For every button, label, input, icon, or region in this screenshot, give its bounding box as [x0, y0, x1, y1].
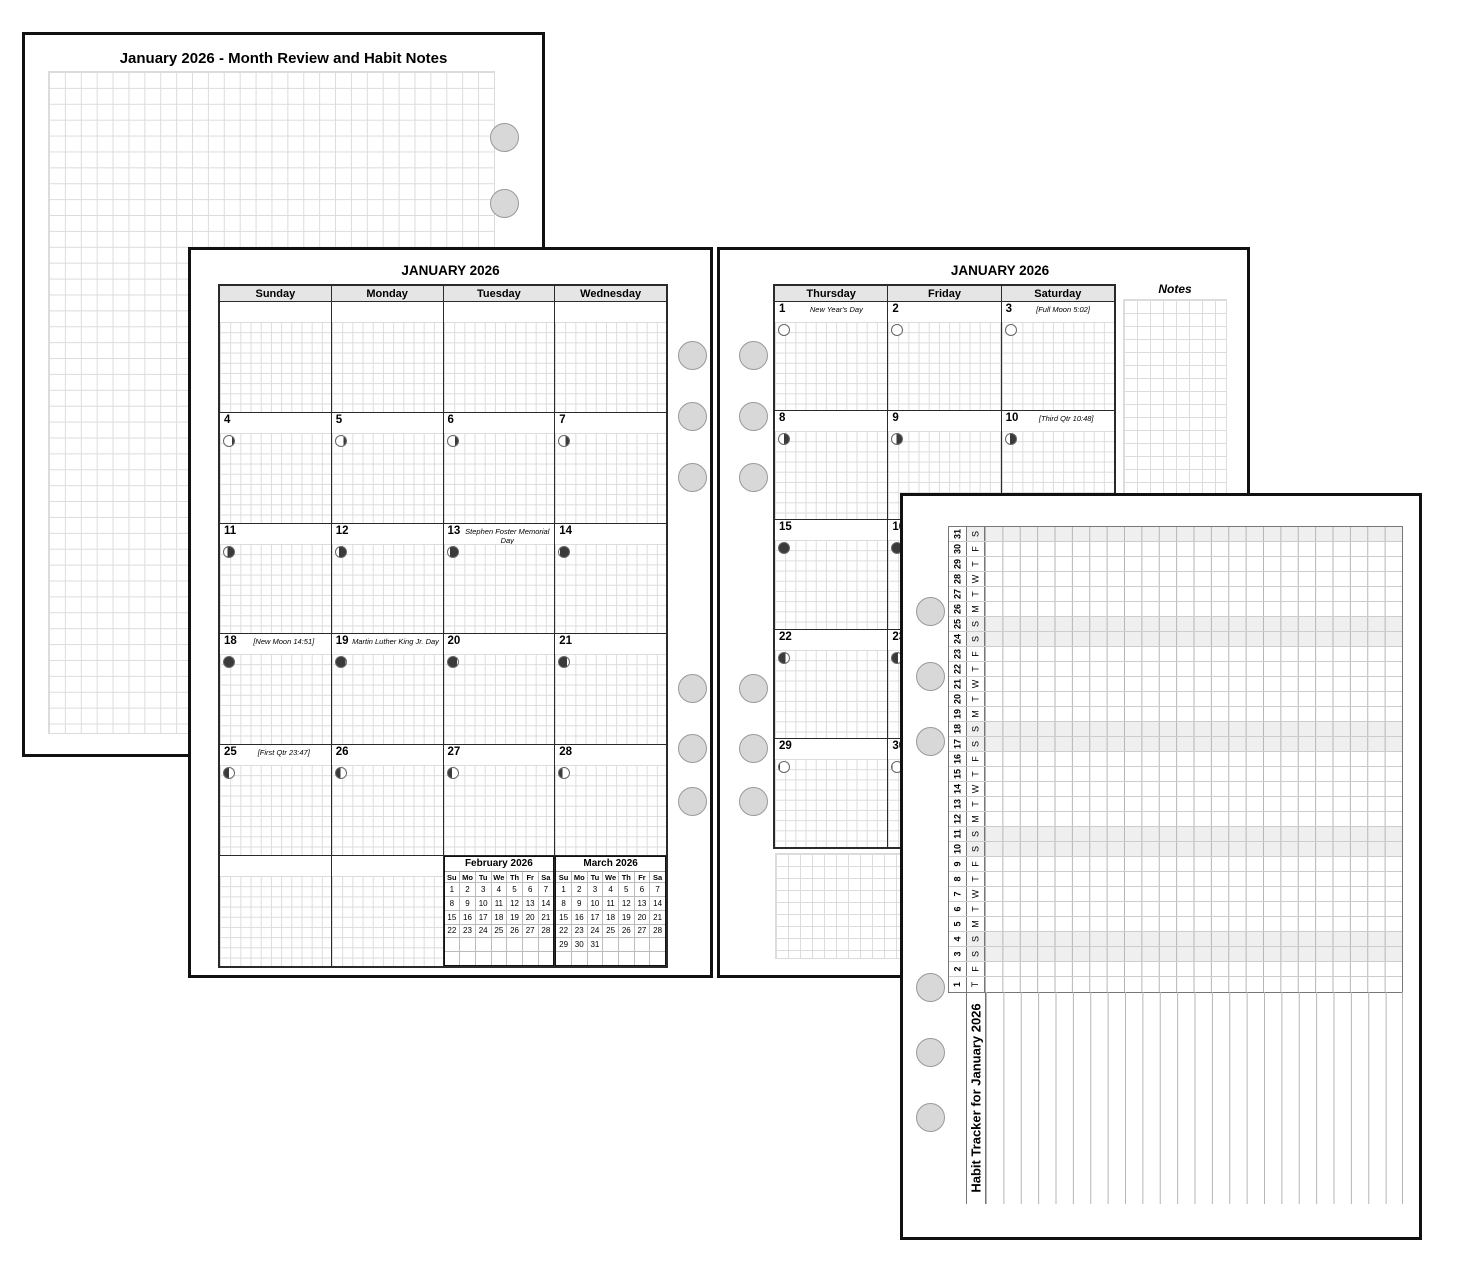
moon-phase-icon: [778, 542, 790, 554]
mini-date: 14: [539, 897, 554, 910]
punch-hole: [678, 463, 707, 492]
tracker-day-number: 19: [949, 707, 967, 721]
tracker-day-number: 26: [949, 602, 967, 616]
date-number: 27: [448, 747, 461, 759]
mini-date: 23: [572, 925, 588, 938]
date-number: 10: [1006, 413, 1019, 425]
day-header-wednesday: Wednesday: [555, 286, 666, 301]
tracker-habit-cells: [985, 962, 1402, 976]
mini-date: [635, 952, 651, 965]
date-number: 19: [336, 636, 349, 648]
date-number: 13: [448, 526, 461, 538]
tracker-day-number: 7: [949, 887, 967, 901]
day-header-thursday: Thursday: [775, 286, 888, 301]
mini-calendar-february-2026: February 2026SuMoTuWeThFrSa1234567891011…: [444, 856, 555, 966]
tracker-row-day-6: 6T: [949, 902, 1402, 917]
punch-hole: [916, 1038, 945, 1067]
tracker-weekday-letter: F: [967, 752, 985, 766]
tracker-habit-cells: [985, 542, 1402, 556]
tracker-weekday-letter: T: [967, 557, 985, 571]
mini-date: 16: [572, 911, 588, 924]
tracker-habit-cells: [985, 662, 1402, 676]
moon-phase-icon: [1005, 324, 1017, 336]
mini-date: 8: [556, 897, 572, 910]
tracker-habit-cells: [985, 527, 1402, 541]
tracker-day-number: 3: [949, 947, 967, 961]
tracker-day-number: 8: [949, 872, 967, 886]
mini-calendar-week-row: 1234567: [556, 882, 665, 896]
tracker-day-number: 6: [949, 902, 967, 916]
punch-hole: [916, 727, 945, 756]
day-header-monday: Monday: [332, 286, 444, 301]
date-cell-grid: [332, 544, 443, 634]
habit-name-columns: [986, 992, 1403, 1204]
moon-phase-icon: [335, 767, 347, 779]
holiday-label: Martin Luther King Jr. Day: [349, 637, 443, 646]
tracker-habit-cells: [985, 647, 1402, 661]
mini-date: 21: [650, 911, 665, 924]
tracker-row-day-27: 27T: [949, 587, 1402, 602]
mini-date: 25: [492, 925, 508, 938]
date-cell-14: 14: [555, 524, 666, 634]
mini-calendar-dow-row: SuMoTuWeThFrSa: [445, 871, 554, 882]
tracker-row-day-5: 5M: [949, 917, 1402, 932]
punch-hole: [739, 402, 768, 431]
punch-hole: [739, 463, 768, 492]
tracker-row-day-1: 1T: [949, 977, 1402, 992]
mini-date: [507, 938, 523, 951]
mini-date: 27: [523, 925, 539, 938]
tracker-day-number: 10: [949, 842, 967, 856]
date-cell-header: [555, 302, 666, 322]
mini-date: 18: [603, 911, 619, 924]
date-cell-header: 28: [555, 745, 666, 765]
holiday-label: Stephen Foster Memorial Day: [460, 527, 554, 545]
moon-phase-icon: [778, 433, 790, 445]
tracker-day-number: 4: [949, 932, 967, 946]
page-title: JANUARY 2026: [773, 263, 1227, 278]
date-cell-header: 22: [775, 630, 887, 650]
date-cell-1: 1New Year's Day: [775, 302, 888, 410]
mini-calendar-title: March 2026: [556, 857, 665, 871]
planner-pages-preview: January 2026 - Month Review and Habit No…: [0, 0, 1464, 1262]
mini-date: [539, 952, 554, 965]
date-number: 21: [559, 636, 572, 648]
date-cell-grid: [220, 544, 331, 634]
mini-date: 15: [556, 911, 572, 924]
calendar-bottom-row: February 2026SuMoTuWeThFrSa1234567891011…: [220, 856, 666, 966]
tracker-row-day-2: 2F: [949, 962, 1402, 977]
tracker-weekday-letter: S: [967, 932, 985, 946]
date-number: 6: [448, 415, 454, 427]
tracker-weekday-letter: M: [967, 602, 985, 616]
tracker-weekday-letter-text: F: [969, 961, 983, 978]
tracker-weekday-letter: T: [967, 662, 985, 676]
moon-phase-icon: [447, 435, 459, 447]
mini-date: 22: [556, 925, 572, 938]
date-cell-header: 1New Year's Day: [775, 302, 887, 322]
mini-date: 28: [539, 925, 554, 938]
mini-calendar-week-row: 22232425262728: [556, 924, 665, 938]
date-cell-27: 27: [444, 745, 556, 855]
mini-date: [445, 938, 461, 951]
mini-date: [572, 952, 588, 965]
tracker-weekday-letter: W: [967, 677, 985, 691]
punch-hole: [739, 674, 768, 703]
mini-date: 19: [507, 911, 523, 924]
date-cell-13: 13Stephen Foster Memorial Day: [444, 524, 556, 634]
mini-date: 30: [572, 938, 588, 951]
date-cell-empty: [220, 302, 332, 412]
tracker-day-number: 14: [949, 782, 967, 796]
moon-phase-icon: [335, 546, 347, 558]
mini-calendar-week-row: 22232425262728: [445, 924, 554, 938]
mini-date: 16: [460, 911, 476, 924]
tracker-weekday-letter: W: [967, 572, 985, 586]
date-cell-20: 20: [444, 634, 556, 744]
holiday-label: [First Qtr 23:47]: [237, 748, 331, 757]
day-header-friday: Friday: [888, 286, 1001, 301]
tracker-day-number: 31: [949, 527, 967, 541]
tracker-row-day-22: 22T: [949, 662, 1402, 677]
tracker-day-number: 30: [949, 542, 967, 556]
mini-calendar-week-row: 15161718192021: [445, 910, 554, 924]
date-number: 25: [224, 747, 237, 759]
date-cell-22: 22: [775, 630, 888, 738]
calendar-week-row: 4567: [220, 413, 666, 524]
date-cell-header: 18[New Moon 14:51]: [220, 634, 331, 654]
mini-date: [635, 938, 651, 951]
date-cell-grid: [332, 433, 443, 523]
calendar-week-row: [220, 302, 666, 413]
tracker-habit-cells: [985, 617, 1402, 631]
mini-date: 22: [445, 925, 461, 938]
date-cell-header: 3[Full Moon 5:02]: [1002, 302, 1114, 322]
date-number: 15: [779, 522, 792, 534]
mini-date: 8: [445, 897, 461, 910]
tracker-row-day-26: 26M: [949, 602, 1402, 617]
date-number: 5: [336, 415, 342, 427]
mini-date: 6: [635, 883, 651, 896]
date-cell-grid: [220, 322, 331, 412]
date-cell-grid: [444, 544, 555, 634]
date-number: 14: [559, 526, 572, 538]
mini-date: 20: [635, 911, 651, 924]
mini-date: 2: [460, 883, 476, 896]
tracker-weekday-letter: M: [967, 812, 985, 826]
date-cell-grid: [888, 322, 1000, 410]
tracker-day-number: 1: [949, 977, 967, 992]
moon-phase-icon: [558, 546, 570, 558]
tracker-habit-cells: [985, 722, 1402, 736]
mini-dow-label: Tu: [476, 872, 492, 882]
mini-calendar-cell: March 2026SuMoTuWeThFrSa1234567891011121…: [555, 856, 666, 966]
mini-date: 19: [619, 911, 635, 924]
page-habit-tracker: 31S30F29T28W27T26M25S24S23F22T21W20T19M1…: [900, 493, 1422, 1240]
mini-date: 2: [572, 883, 588, 896]
tracker-weekday-letter: S: [967, 842, 985, 856]
mini-dow-label: Th: [507, 872, 523, 882]
tracker-row-day-4: 4S: [949, 932, 1402, 947]
date-cell-header: 21: [555, 634, 666, 654]
date-cell-header: [332, 302, 443, 322]
mini-calendar-week-row: [445, 951, 554, 965]
date-cell-18: 18[New Moon 14:51]: [220, 634, 332, 744]
date-cell-grid: [332, 765, 443, 855]
holiday-label: [Third Qtr 10:48]: [1018, 414, 1114, 423]
tracker-day-number: 18: [949, 722, 967, 736]
date-number: 26: [336, 747, 349, 759]
date-cell-grid: [220, 765, 331, 855]
mini-date: 1: [556, 883, 572, 896]
mini-date: [650, 952, 665, 965]
tracker-weekday-letter: F: [967, 857, 985, 871]
tracker-row-day-9: 9F: [949, 857, 1402, 872]
tracker-day-number: 15: [949, 767, 967, 781]
mini-calendar-cell: February 2026SuMoTuWeThFrSa1234567891011…: [444, 856, 556, 966]
date-cell-grid: [555, 544, 666, 634]
tracker-habit-cells: [985, 767, 1402, 781]
mini-date: [619, 952, 635, 965]
tracker-habit-cells: [985, 812, 1402, 826]
tracker-row-day-31: 31S: [949, 527, 1402, 542]
tracker-day-number: 28: [949, 572, 967, 586]
date-cell-empty: [220, 856, 332, 966]
tracker-habit-cells: [985, 572, 1402, 586]
moon-phase-icon: [335, 656, 347, 668]
date-cell-header: [220, 856, 331, 876]
tracker-row-day-25: 25S: [949, 617, 1402, 632]
tracker-habit-cells: [985, 797, 1402, 811]
mini-dow-label: Sa: [539, 872, 554, 882]
punch-hole: [678, 402, 707, 431]
mini-calendar-week-row: 891011121314: [445, 896, 554, 910]
tracker-weekday-letter: T: [967, 587, 985, 601]
habit-tracker-table: 31S30F29T28W27T26M25S24S23F22T21W20T19M1…: [948, 526, 1403, 993]
punch-hole: [739, 734, 768, 763]
mini-date: [619, 938, 635, 951]
mini-dow-label: Su: [445, 872, 461, 882]
tracker-day-number: 17: [949, 737, 967, 751]
date-cell-15: 15: [775, 520, 888, 628]
tracker-row-day-15: 15T: [949, 767, 1402, 782]
tracker-weekday-letter: S: [967, 527, 985, 541]
date-cell-grid: [775, 759, 887, 847]
tracker-row-day-30: 30F: [949, 542, 1402, 557]
mini-calendar-week-row: 15161718192021: [556, 910, 665, 924]
mini-date: [539, 938, 554, 951]
tracker-row-day-10: 10S: [949, 842, 1402, 857]
mini-date: 23: [460, 925, 476, 938]
date-cell-grid: [1002, 322, 1114, 410]
date-number: 22: [779, 632, 792, 644]
page-title: JANUARY 2026: [191, 263, 710, 278]
tracker-day-number: 25: [949, 617, 967, 631]
date-cell-header: 25[First Qtr 23:47]: [220, 745, 331, 765]
tracker-row-day-17: 17S: [949, 737, 1402, 752]
holiday-label: New Year's Day: [785, 305, 887, 314]
tracker-row-day-23: 23F: [949, 647, 1402, 662]
tracker-weekday-letter: T: [967, 902, 985, 916]
tracker-day-number: 5: [949, 917, 967, 931]
calendar-week-row: 25[First Qtr 23:47]262728: [220, 745, 666, 856]
mini-date: 14: [650, 897, 665, 910]
punch-hole: [490, 189, 519, 218]
tracker-day-number: 21: [949, 677, 967, 691]
punch-hole: [490, 123, 519, 152]
tracker-weekday-letter: W: [967, 887, 985, 901]
holiday-label: [New Moon 14:51]: [237, 637, 331, 646]
mini-date: 1: [445, 883, 461, 896]
tracker-day-number: 12: [949, 812, 967, 826]
punch-hole: [916, 597, 945, 626]
date-number: 11: [224, 526, 236, 538]
tracker-habit-cells: [985, 857, 1402, 871]
tracker-row-day-8: 8T: [949, 872, 1402, 887]
date-cell-grid: [332, 876, 443, 966]
mini-calendar-week-row: [556, 951, 665, 965]
mini-date: [445, 952, 461, 965]
date-cell-header: [332, 856, 443, 876]
mini-date: 28: [650, 925, 665, 938]
mini-date: 3: [588, 883, 604, 896]
mini-date: 18: [492, 911, 508, 924]
mini-date: 3: [476, 883, 492, 896]
mini-date: [476, 938, 492, 951]
mini-dow-label: We: [492, 872, 508, 882]
mini-date: 11: [492, 897, 508, 910]
mini-date: 26: [619, 925, 635, 938]
date-cell-grid: [555, 765, 666, 855]
tracker-weekday-letter-text: T: [968, 976, 983, 993]
date-cell-header: 15: [775, 520, 887, 540]
mini-date: 7: [650, 883, 665, 896]
mini-date: 12: [507, 897, 523, 910]
mini-date: 13: [523, 897, 539, 910]
date-cell-header: 7: [555, 413, 666, 433]
mini-date: 7: [539, 883, 554, 896]
date-cell-header: 8: [775, 411, 887, 431]
moon-phase-icon: [891, 324, 903, 336]
tracker-row-day-24: 24S: [949, 632, 1402, 647]
mini-calendar-week-row: 293031: [556, 937, 665, 951]
mini-dow-label: Th: [619, 872, 635, 882]
tracker-row-day-12: 12M: [949, 812, 1402, 827]
mini-dow-label: Su: [556, 872, 572, 882]
tracker-habit-cells: [985, 692, 1402, 706]
mini-date: [476, 952, 492, 965]
date-cell-header: 9: [888, 411, 1000, 431]
mini-date: [492, 938, 508, 951]
date-number: 2: [892, 304, 898, 316]
mini-date: [603, 938, 619, 951]
moon-phase-icon: [778, 324, 790, 336]
tracker-weekday-letter: T: [967, 767, 985, 781]
moon-phase-icon: [558, 656, 570, 668]
tracker-row-day-28: 28W: [949, 572, 1402, 587]
mini-dow-label: Tu: [588, 872, 604, 882]
date-cell-header: 27: [444, 745, 555, 765]
mini-date: 4: [492, 883, 508, 896]
tracker-habit-cells: [985, 752, 1402, 766]
calendar-week-row: 18[New Moon 14:51]19Martin Luther King J…: [220, 634, 666, 745]
tracker-day-number: 16: [949, 752, 967, 766]
tracker-weekday-letter: T: [967, 872, 985, 886]
moon-phase-icon: [891, 433, 903, 445]
mini-date: 5: [619, 883, 635, 896]
date-cell-19: 19Martin Luther King Jr. Day: [332, 634, 444, 744]
mini-dow-label: Sa: [650, 872, 665, 882]
punch-hole: [678, 674, 707, 703]
date-cell-26: 26: [332, 745, 444, 855]
tracker-weekday-letter: S: [967, 737, 985, 751]
tracker-habit-cells: [985, 587, 1402, 601]
date-cell-grid: [775, 431, 887, 519]
mini-dow-label: Mo: [460, 872, 476, 882]
date-cell-header: 4: [220, 413, 331, 433]
tracker-row-day-29: 29T: [949, 557, 1402, 572]
moon-phase-icon: [223, 546, 235, 558]
date-cell-7: 7: [555, 413, 666, 523]
date-cell-grid: [220, 876, 331, 966]
tracker-row-day-16: 16F: [949, 752, 1402, 767]
mini-date: 24: [476, 925, 492, 938]
calendar-header-row: ThursdayFridaySaturday: [775, 286, 1114, 302]
tracker-day-number: 27: [949, 587, 967, 601]
tracker-weekday-letter: T: [967, 797, 985, 811]
tracker-row-day-20: 20T: [949, 692, 1402, 707]
tracker-day-number-text: 2: [951, 961, 965, 978]
date-cell-28: 28: [555, 745, 666, 855]
tracker-day-number: 29: [949, 557, 967, 571]
date-cell-6: 6: [444, 413, 556, 523]
mini-date: 17: [476, 911, 492, 924]
habit-tracker-title: Habit Tracker for January 2026: [968, 992, 983, 1204]
tracker-weekday-letter: F: [967, 962, 985, 976]
date-cell-grid: [332, 654, 443, 744]
tracker-weekday-letter: S: [967, 617, 985, 631]
moon-phase-icon: [447, 656, 459, 668]
date-cell-grid: [220, 654, 331, 744]
tracker-day-number: 9: [949, 857, 967, 871]
mini-date: [556, 952, 572, 965]
date-number: 8: [779, 413, 785, 425]
mini-date: [650, 938, 665, 951]
tracker-day-number: 22: [949, 662, 967, 676]
moon-phase-icon: [558, 767, 570, 779]
date-cell-29: 29: [775, 739, 888, 847]
mini-date: [523, 938, 539, 951]
moon-phase-icon: [447, 546, 459, 558]
tracker-row-day-13: 13T: [949, 797, 1402, 812]
moon-phase-icon: [778, 652, 790, 664]
tracker-habit-cells: [985, 842, 1402, 856]
mini-date: 31: [588, 938, 604, 951]
date-cell-grid: [775, 540, 887, 628]
mini-calendar-dow-row: SuMoTuWeThFrSa: [556, 871, 665, 882]
date-number: 7: [559, 415, 565, 427]
date-number: 4: [224, 415, 230, 427]
date-cell-header: 11: [220, 524, 331, 544]
date-cell-grid: [555, 433, 666, 523]
tracker-habit-cells: [985, 737, 1402, 751]
tracker-row-day-21: 21W: [949, 677, 1402, 692]
date-cell-grid: [555, 322, 666, 412]
punch-hole: [739, 787, 768, 816]
date-cell-empty: [444, 302, 556, 412]
notes-column-label: Notes: [1123, 282, 1227, 296]
date-cell-8: 8: [775, 411, 888, 519]
